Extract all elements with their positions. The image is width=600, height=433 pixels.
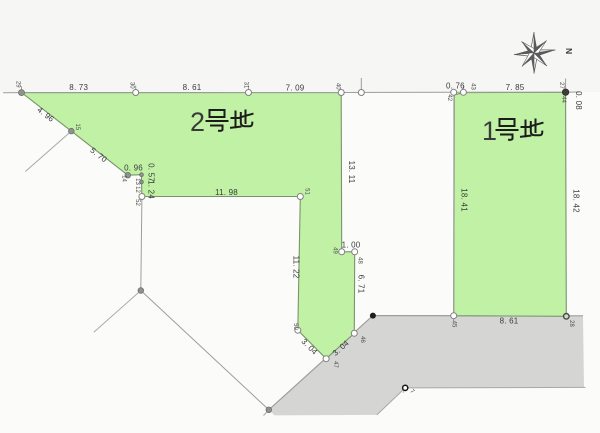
svg-text:52: 52 [134, 199, 140, 206]
svg-text:7. 09: 7. 09 [286, 83, 305, 92]
svg-text:1: 1 [482, 116, 497, 146]
svg-text:31: 31 [243, 82, 249, 89]
svg-text:42: 42 [446, 94, 452, 101]
svg-text:40: 40 [335, 83, 341, 90]
svg-text:28: 28 [568, 320, 574, 327]
svg-text:45: 45 [451, 321, 457, 328]
svg-text:13: 13 [134, 178, 140, 185]
svg-text:30: 30 [129, 82, 135, 89]
svg-text:43: 43 [470, 83, 476, 90]
svg-text:N: N [564, 48, 574, 54]
svg-text:14: 14 [121, 175, 127, 182]
svg-text:0. 96: 0. 96 [124, 164, 143, 173]
svg-text:11. 98: 11. 98 [215, 188, 238, 197]
svg-text:2: 2 [190, 107, 205, 137]
svg-text:0. 08: 0. 08 [574, 91, 583, 110]
svg-text:8. 61: 8. 61 [183, 83, 202, 92]
svg-text:8. 61: 8. 61 [500, 317, 519, 326]
svg-text:48: 48 [357, 257, 363, 264]
svg-text:49: 49 [332, 247, 338, 254]
svg-text:12: 12 [134, 186, 140, 193]
svg-text:27: 27 [558, 82, 564, 89]
svg-text:50: 50 [292, 323, 298, 330]
svg-text:1. 00: 1. 00 [342, 240, 361, 249]
svg-text:51: 51 [304, 188, 310, 195]
svg-text:0. 76: 0. 76 [446, 82, 465, 91]
svg-text:11. 22: 11. 22 [292, 256, 301, 279]
svg-text:46: 46 [359, 336, 365, 343]
svg-text:29: 29 [14, 81, 20, 88]
svg-text:18. 42: 18. 42 [572, 189, 581, 213]
svg-text:13. 11: 13. 11 [347, 161, 356, 184]
svg-text:7. 85: 7. 85 [506, 83, 525, 92]
svg-text:18. 41: 18. 41 [460, 188, 469, 212]
svg-text:44: 44 [560, 96, 566, 103]
svg-text:6. 71: 6. 71 [357, 275, 366, 294]
svg-text:47: 47 [332, 361, 338, 368]
svg-text:8. 73: 8. 73 [69, 83, 88, 92]
svg-text:1. 24: 1. 24 [147, 180, 156, 199]
svg-text:15: 15 [74, 123, 80, 130]
